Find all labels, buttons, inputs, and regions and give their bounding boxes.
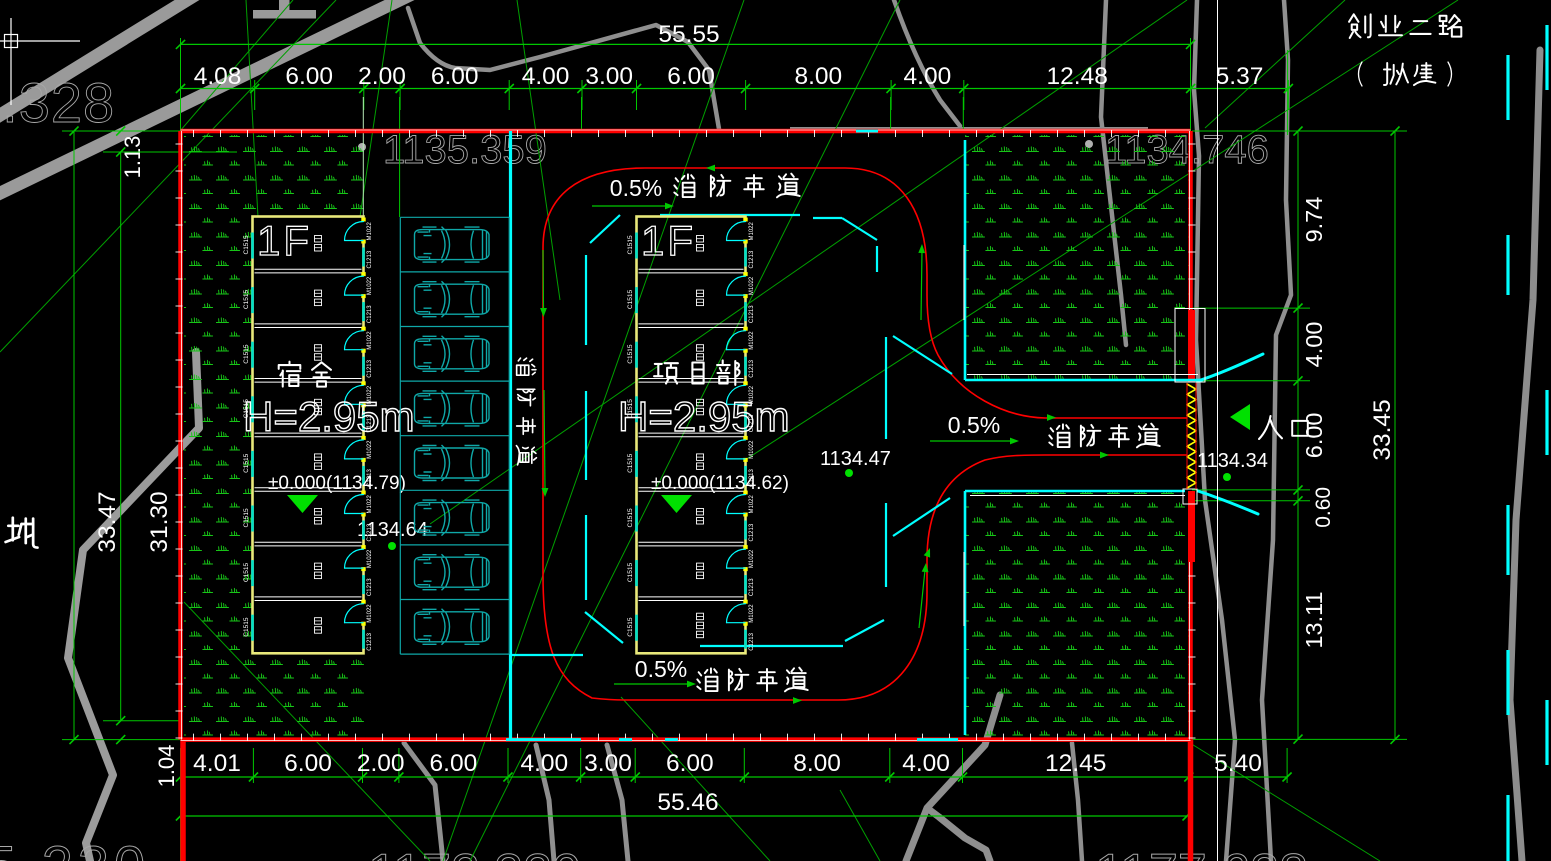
svg-text:C1515: C1515 — [627, 235, 634, 255]
svg-text:31.30: 31.30 — [146, 491, 173, 552]
svg-text:M1022: M1022 — [749, 494, 755, 513]
svg-text:3.00: 3.00 — [584, 750, 632, 777]
svg-text:4.00: 4.00 — [520, 750, 568, 777]
svg-text:5.37: 5.37 — [1216, 63, 1264, 90]
svg-text:M1022: M1022 — [749, 549, 755, 568]
svg-text:8.00: 8.00 — [794, 63, 842, 90]
svg-text:C1213: C1213 — [749, 359, 755, 377]
svg-text:M1022: M1022 — [367, 440, 373, 459]
svg-text:0.5%: 0.5% — [635, 656, 687, 682]
svg-text:2.00: 2.00 — [357, 750, 405, 777]
svg-text:C1515: C1515 — [243, 563, 250, 583]
svg-text:13.11: 13.11 — [1301, 591, 1327, 648]
svg-text:6.00: 6.00 — [666, 750, 714, 777]
svg-text:1134.47: 1134.47 — [820, 448, 891, 470]
svg-text:C1213: C1213 — [367, 578, 373, 596]
svg-text:3.00: 3.00 — [585, 63, 633, 90]
svg-text:C1515: C1515 — [243, 235, 250, 255]
svg-text:M1022: M1022 — [749, 331, 755, 350]
svg-text:C1515: C1515 — [627, 290, 634, 310]
svg-text:M1022: M1022 — [367, 331, 373, 350]
svg-text:C1213: C1213 — [367, 523, 373, 541]
svg-text:C1515: C1515 — [243, 290, 250, 310]
svg-text:4.08: 4.08 — [194, 63, 242, 90]
svg-text:C1213: C1213 — [749, 305, 755, 323]
svg-text:1F: 1F — [641, 217, 696, 264]
svg-text:C1515: C1515 — [627, 344, 634, 364]
svg-text:C1515: C1515 — [243, 453, 250, 473]
svg-text:12.48: 12.48 — [1047, 63, 1108, 90]
svg-text:8.00: 8.00 — [793, 750, 841, 777]
svg-text:33.45: 33.45 — [1369, 399, 1396, 460]
svg-text:C1515: C1515 — [627, 508, 634, 528]
svg-text:C1213: C1213 — [749, 250, 755, 268]
svg-text:55.55: 55.55 — [658, 21, 719, 48]
svg-text:12.45: 12.45 — [1045, 750, 1106, 777]
svg-text:C1213: C1213 — [749, 632, 755, 650]
svg-text:4.00: 4.00 — [902, 750, 950, 777]
svg-text:C1515: C1515 — [243, 617, 250, 637]
svg-text:1.04: 1.04 — [154, 745, 179, 788]
svg-text:M1022: M1022 — [367, 221, 373, 240]
svg-text:4.00: 4.00 — [904, 63, 952, 90]
svg-text:C1213: C1213 — [749, 523, 755, 541]
svg-text:1135.359: 1135.359 — [383, 128, 547, 172]
svg-text:M1022: M1022 — [749, 604, 755, 623]
svg-text:M1022: M1022 — [367, 549, 373, 568]
svg-text:55.46: 55.46 — [657, 789, 718, 816]
svg-text:C1213: C1213 — [367, 250, 373, 268]
svg-text:5.40: 5.40 — [1214, 750, 1262, 777]
svg-text:0.5%: 0.5% — [948, 412, 1000, 438]
svg-text:0.5%: 0.5% — [610, 175, 662, 201]
svg-text:6.00: 6.00 — [430, 750, 478, 777]
svg-text:M1022: M1022 — [367, 494, 373, 513]
svg-text:C1515: C1515 — [627, 453, 634, 473]
svg-text:33.47: 33.47 — [94, 491, 121, 552]
svg-text:0.60: 0.60 — [1312, 487, 1335, 528]
svg-text:4.00: 4.00 — [1301, 322, 1327, 368]
svg-text:1177.638: 1177.638 — [1095, 844, 1308, 861]
svg-text:6.00: 6.00 — [431, 63, 479, 90]
svg-text:C1515: C1515 — [243, 344, 250, 364]
svg-text:1134.34: 1134.34 — [1197, 450, 1268, 472]
svg-text:6.00: 6.00 — [667, 63, 715, 90]
svg-text:5.230: 5.230 — [0, 834, 150, 861]
svg-text:6.00: 6.00 — [285, 63, 333, 90]
svg-text:C1213: C1213 — [749, 578, 755, 596]
svg-text:1F: 1F — [257, 217, 312, 264]
svg-text:±0.000(1134.79): ±0.000(1134.79) — [268, 473, 406, 494]
svg-text:M1022: M1022 — [749, 440, 755, 459]
svg-text:H=2.95m: H=2.95m — [618, 393, 790, 440]
svg-text:4.00: 4.00 — [522, 63, 570, 90]
svg-text:M1022: M1022 — [367, 276, 373, 295]
svg-text:M1022: M1022 — [367, 604, 373, 623]
svg-text:M1022: M1022 — [749, 276, 755, 295]
svg-text:9.74: 9.74 — [1301, 197, 1327, 243]
svg-text:6.00: 6.00 — [284, 750, 332, 777]
svg-text:C1213: C1213 — [367, 359, 373, 377]
svg-text:C1213: C1213 — [367, 632, 373, 650]
svg-text:C1515: C1515 — [243, 508, 250, 528]
svg-text:4.01: 4.01 — [193, 750, 241, 777]
svg-text:C1213: C1213 — [367, 305, 373, 323]
svg-text:1.13: 1.13 — [120, 136, 145, 179]
svg-text:H=2.95m: H=2.95m — [243, 393, 415, 440]
svg-text:M1022: M1022 — [749, 221, 755, 240]
svg-text:C1515: C1515 — [627, 617, 634, 637]
svg-text:C1515: C1515 — [627, 563, 634, 583]
svg-text:2.00: 2.00 — [358, 63, 406, 90]
svg-text:±0.000(1134.62): ±0.000(1134.62) — [651, 473, 789, 494]
svg-text:5.328: 5.328 — [0, 71, 115, 134]
